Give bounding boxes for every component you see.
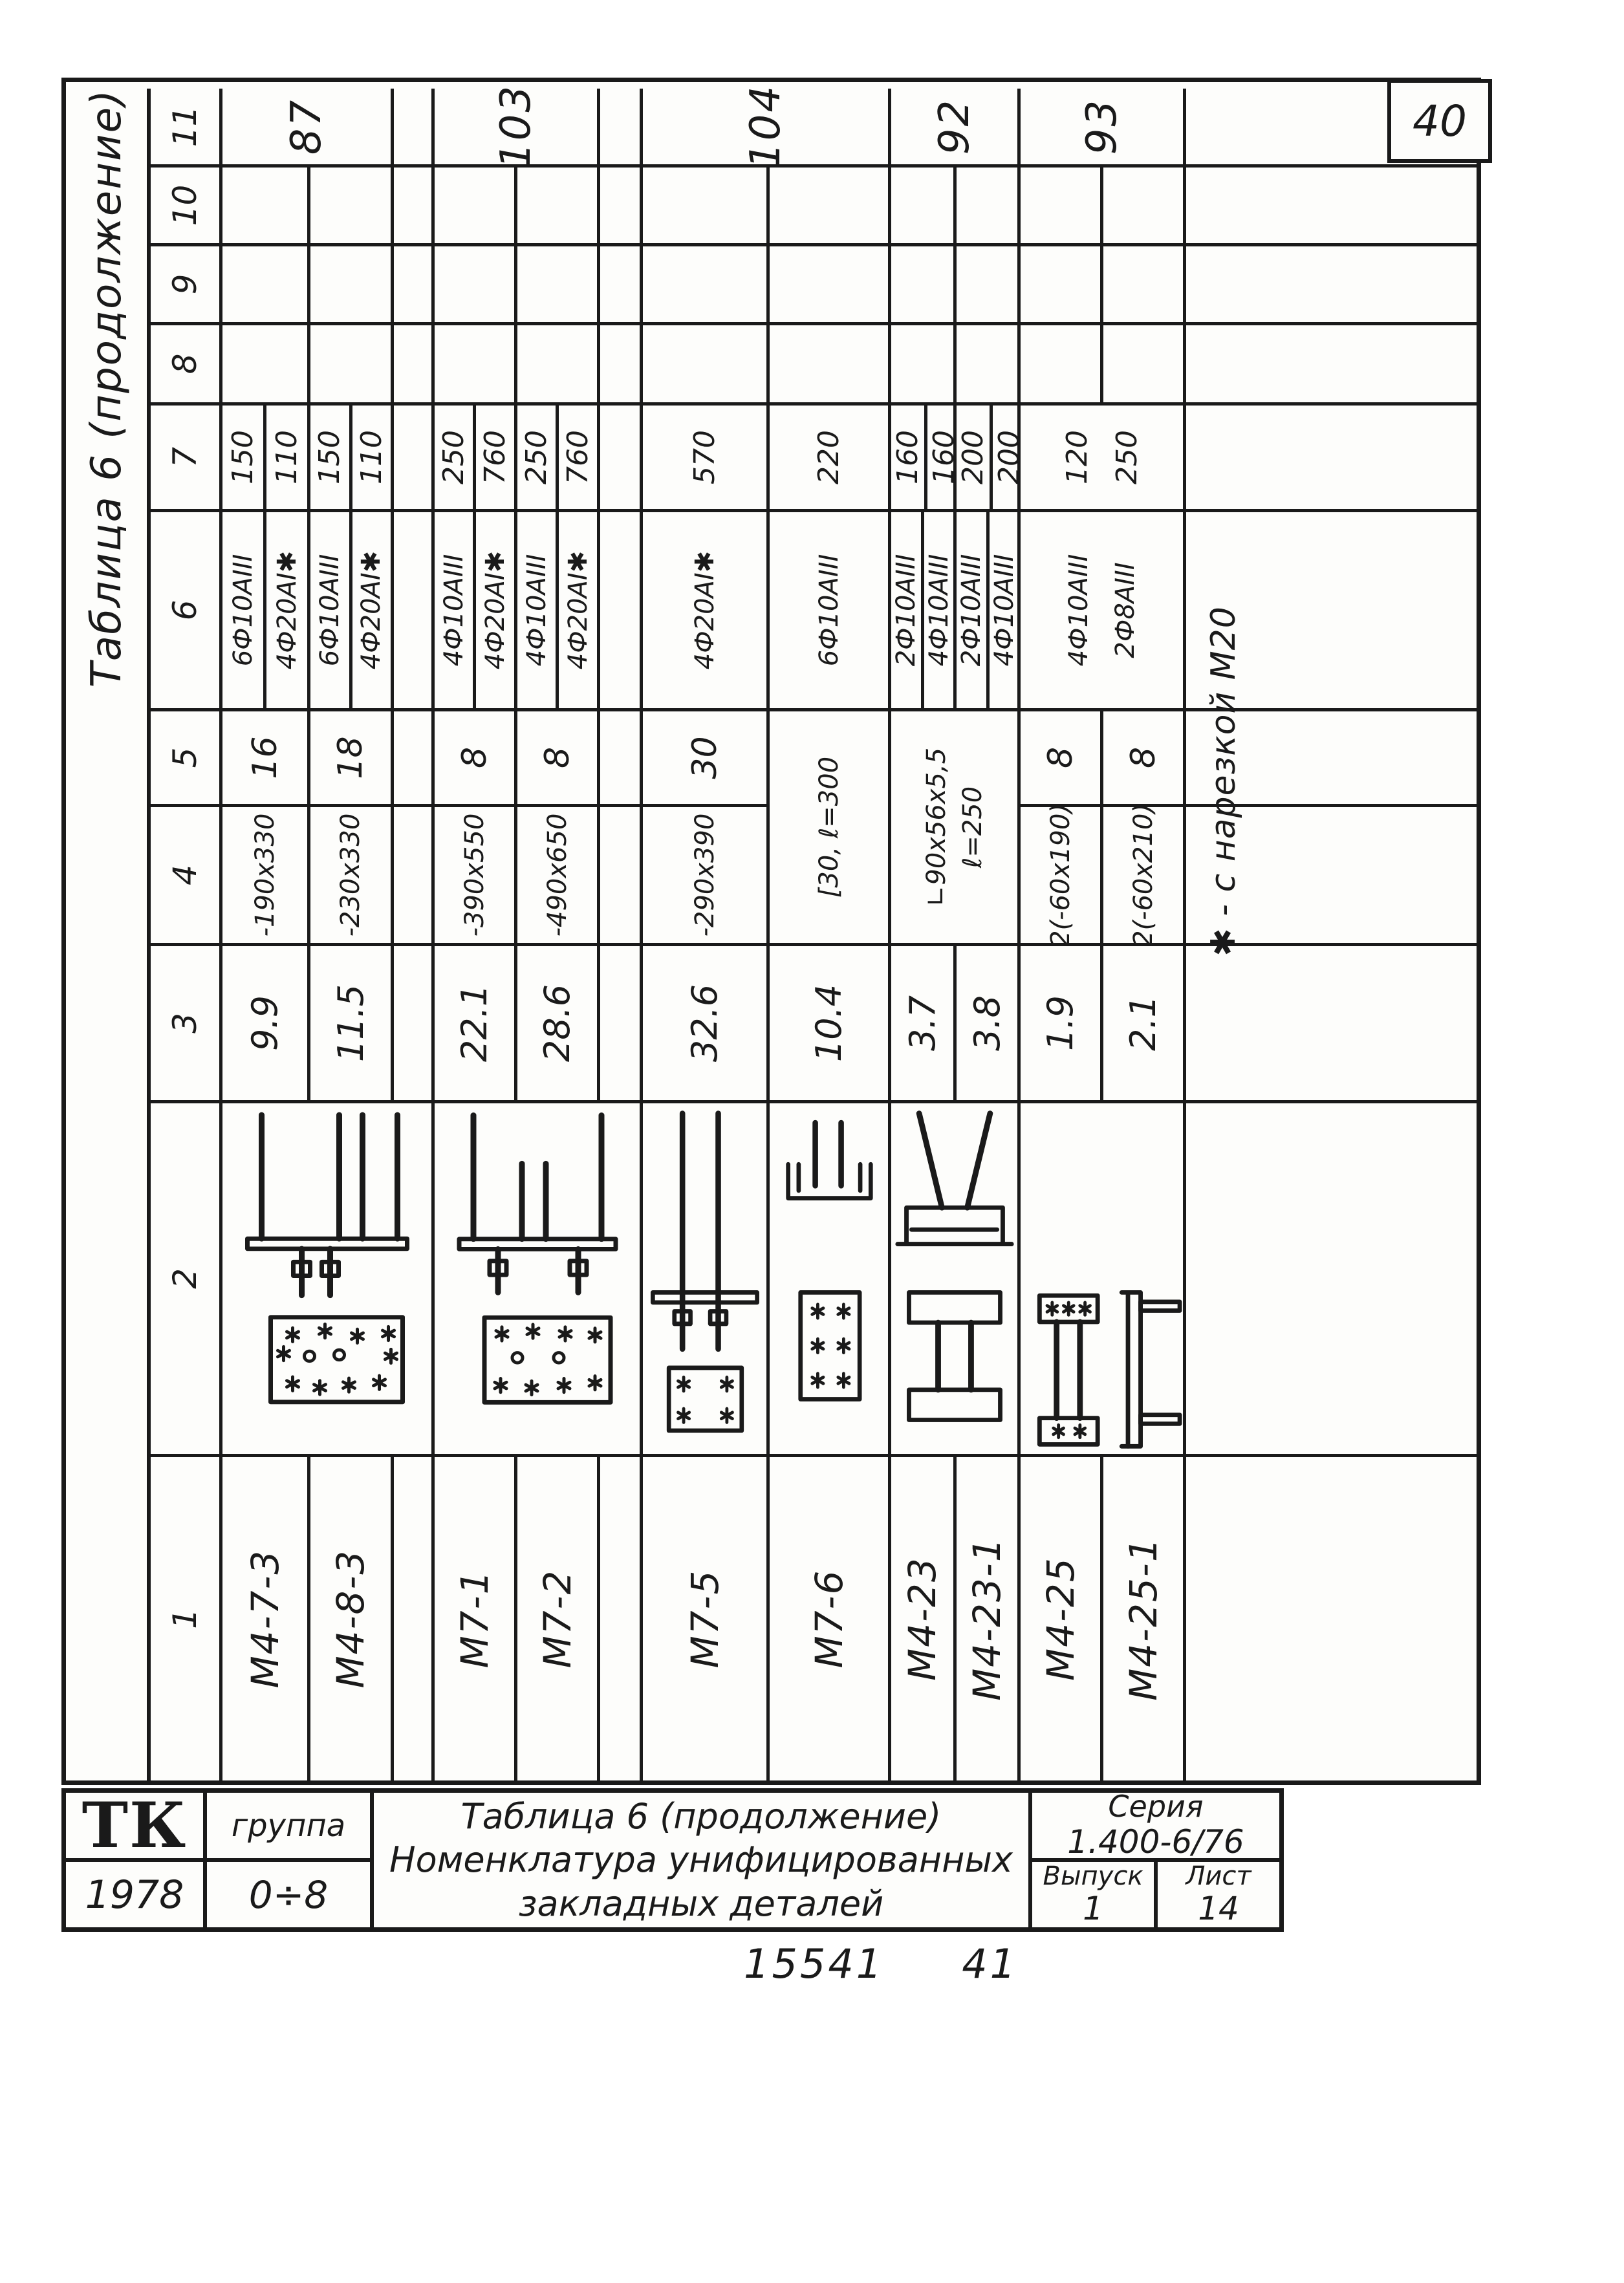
rebar-entry: 4Ф10АIII: [517, 512, 556, 708]
empty-cell: [891, 246, 953, 322]
mark-cell: М4-25-1: [1103, 1457, 1183, 1780]
length-cell: 570: [643, 406, 766, 509]
empty-cell: [1103, 168, 1183, 243]
group-mass-cell: 93: [1021, 89, 1183, 164]
empty-cell: [600, 807, 640, 943]
empty-cell: [222, 325, 307, 402]
empty-cell: [1021, 246, 1100, 322]
empty-cell: [600, 946, 640, 1100]
empty-cell: [1103, 246, 1183, 322]
group-mass-cell: 104: [643, 89, 888, 164]
empty-cell: [1021, 168, 1100, 243]
plate-cell: 2(-60x190): [1021, 807, 1100, 943]
empty-cell: [310, 168, 391, 243]
sheet-label: Лист: [1186, 1863, 1251, 1890]
sketch-cell: [435, 1103, 640, 1454]
scanned-sheet: { "page": { "sheet_number": "40", "stamp…: [0, 0, 1624, 2283]
length-entry: 160: [927, 406, 953, 509]
rebar-entry: 4Ф20АI✱: [352, 512, 391, 708]
rotated-table-layer: Таблица 6 (продолжение) 1 2 3 4 5 6 7 8 …: [61, 78, 1481, 1785]
length-cell: 150 110: [222, 406, 307, 509]
rebar-cell: 6Ф10АIII 4Ф20АI✱: [310, 512, 391, 708]
empty-cell: [643, 168, 766, 243]
length-entry: 150: [310, 406, 349, 509]
empty-cell: [770, 325, 888, 402]
sketch-m4-25-group-drawing: [1022, 1104, 1182, 1453]
group-label-cell: группа: [207, 1793, 370, 1858]
sketch-cell: [770, 1103, 888, 1454]
header-cell: 2: [151, 1103, 219, 1454]
header-cell: 4: [151, 807, 219, 943]
empty-cell: [394, 246, 431, 322]
length-entry: 760: [476, 406, 514, 509]
header-cell: 10: [151, 168, 219, 243]
length-entry: 120: [1061, 430, 1094, 484]
qty-cell: 18: [310, 711, 391, 804]
empty-cell: [600, 512, 640, 708]
sheet-number: 40: [1413, 96, 1467, 146]
length-cell: 250 760: [435, 406, 514, 509]
length-entry: 200: [993, 406, 1017, 509]
length-entry: 760: [559, 406, 597, 509]
empty-cell: [1186, 1457, 1480, 1780]
rebar-entry: 4Ф10АIII: [924, 512, 953, 708]
empty-cell: [891, 168, 953, 243]
stamp-numbers: 1554141: [744, 1940, 1096, 1987]
empty-cell: [310, 325, 391, 402]
sketch-m4-7-group-drawing: [242, 1104, 412, 1453]
empty-cell: [310, 246, 391, 322]
header-cell: 3: [151, 946, 219, 1100]
issue-label: Выпуск: [1043, 1863, 1143, 1890]
length-entry: 160: [891, 406, 924, 509]
sketch-m4-23-group-drawing: [893, 1104, 1017, 1453]
empty-cell: [600, 89, 640, 164]
title-line: Номенклатура унифицированных: [389, 1838, 1013, 1882]
empty-cell: [1186, 246, 1480, 322]
sketch-m7-5-drawing: [644, 1104, 766, 1453]
length-cell: 150 110: [310, 406, 391, 509]
mass-cell: 28.6: [517, 946, 597, 1100]
mark-cell: М7-1: [435, 1457, 514, 1780]
empty-cell: [957, 325, 1017, 402]
empty-cell: [643, 325, 766, 402]
mass-cell: 1.9: [1021, 946, 1100, 1100]
logo-cell: ТК: [66, 1793, 203, 1858]
empty-cell: [600, 325, 640, 402]
sheet-cell: Лист 14: [1158, 1862, 1279, 1927]
stamp-number-right: 41: [962, 1940, 1018, 1987]
table-caption: Таблица 6 (продолжение): [66, 78, 147, 1780]
table-footnote: ✱ - с нарезкой М20: [1204, 519, 1243, 1043]
empty-cell: [1021, 325, 1100, 402]
empty-cell: [435, 325, 514, 402]
rebar-cell: 2Ф10АIII 4Ф10АIII: [891, 512, 953, 708]
qty-cell: 8: [435, 711, 514, 804]
empty-cell: [517, 246, 597, 322]
empty-cell: [957, 246, 1017, 322]
series-cell: Серия 1.400-6/76: [1032, 1793, 1279, 1858]
sketch-cell: [891, 1103, 1017, 1454]
group-mass-cell: 92: [891, 89, 1017, 164]
sketch-m7-1-group-drawing: [455, 1104, 620, 1453]
mass-cell: 22.1: [435, 946, 514, 1100]
empty-cell: [600, 1457, 640, 1780]
rebar-cell: 4Ф10АIII 2Ф8АIII: [1021, 512, 1183, 708]
mark-cell: М7-5: [643, 1457, 766, 1780]
mass-cell: 10.4: [770, 946, 888, 1100]
header-cell: 1: [151, 1457, 219, 1780]
sheet-number-box: 40: [1387, 79, 1492, 163]
length-cell: 160 160: [891, 406, 953, 509]
length-entry: 110: [266, 406, 307, 509]
rebar-entry: 6Ф10АIII: [310, 512, 349, 708]
qty-cell: 16: [222, 711, 307, 804]
plate-cell: -290x390: [643, 807, 766, 943]
mass-cell: 3.7: [891, 946, 953, 1100]
header-cell: 5: [151, 711, 219, 804]
mass-cell: 11.5: [310, 946, 391, 1100]
mass-cell: 9.9: [222, 946, 307, 1100]
rebar-entry: 4Ф20АI✱: [266, 512, 307, 708]
length-cell: 250 760: [517, 406, 597, 509]
plate-cell: -490x650: [517, 807, 597, 943]
mark-cell: М7-6: [770, 1457, 888, 1780]
group-mass-cell: 87: [222, 89, 391, 164]
plate-cell: 2(-60x210): [1103, 807, 1183, 943]
rebar-cell: 4Ф10АIII 4Ф20АI✱: [517, 512, 597, 708]
empty-cell: [394, 406, 431, 509]
mark-cell: М7-2: [517, 1457, 597, 1780]
mass-cell: 32.6: [643, 946, 766, 1100]
sketch-cell: [222, 1103, 431, 1454]
rebar-entry: 4Ф10АIII: [435, 512, 473, 708]
title-line: закладных деталей: [519, 1882, 883, 1926]
empty-cell: [600, 168, 640, 243]
mark-cell: М4-7-3: [222, 1457, 307, 1780]
mark-cell: М4-23-1: [957, 1457, 1017, 1780]
length-entry: 200: [957, 406, 990, 509]
length-cell: 220: [770, 406, 888, 509]
qty-cell: 30: [643, 711, 766, 804]
series-label: Серия: [1108, 1790, 1203, 1823]
empty-cell: [435, 168, 514, 243]
mark-cell: М4-25: [1021, 1457, 1100, 1780]
mark-cell: М4-8-3: [310, 1457, 391, 1780]
mass-cell: 3.8: [957, 946, 1017, 1100]
group-value-cell: 0÷8: [207, 1862, 370, 1927]
angle-spec-cell: ∟90x56x5,5 ℓ=250: [891, 711, 1017, 943]
empty-cell: [394, 1457, 431, 1780]
empty-cell: [394, 807, 431, 943]
group-mass-cell: 103: [435, 89, 597, 164]
length-cell: 120 250: [1021, 406, 1183, 509]
channel-spec-cell: [30, ℓ=300: [770, 711, 888, 943]
empty-cell: [222, 168, 307, 243]
sketch-cell: [1021, 1103, 1183, 1454]
empty-cell: [1186, 325, 1480, 402]
empty-cell: [957, 168, 1017, 243]
angle-spec-line: ℓ=250: [958, 748, 988, 907]
length-entry: 250: [517, 406, 556, 509]
rebar-entry: 2Ф10АIII: [957, 512, 986, 708]
empty-cell: [1186, 168, 1480, 243]
rebar-cell: 2Ф10АIII 4Ф10АIII: [957, 512, 1017, 708]
title-block: ТК группа Таблица 6 (продолжение) Номенк…: [61, 1788, 1284, 1932]
empty-cell: [435, 246, 514, 322]
empty-cell: [1186, 406, 1480, 509]
length-cell: 200 200: [957, 406, 1017, 509]
tk-logo: ТК: [82, 1789, 188, 1862]
empty-cell: [600, 246, 640, 322]
rebar-cell: 6Ф10АIII 4Ф20АI✱: [222, 512, 307, 708]
plate-cell: -230x330: [310, 807, 391, 943]
mass-cell: 2.1: [1103, 946, 1183, 1100]
header-cell: 9: [151, 246, 219, 322]
empty-cell: [770, 168, 888, 243]
rebar-entry: 2Ф8АIII: [1110, 554, 1140, 667]
mark-cell: М4-23: [891, 1457, 953, 1780]
header-cell: 11: [151, 89, 219, 164]
empty-cell: [394, 89, 431, 164]
issue-cell: Выпуск 1: [1032, 1862, 1154, 1927]
empty-cell: [394, 711, 431, 804]
empty-cell: [600, 711, 640, 804]
sketch-cell: [643, 1103, 766, 1454]
header-cell: 7: [151, 406, 219, 509]
rebar-entry: 4Ф20АI✱: [476, 512, 514, 708]
document-title-cell: Таблица 6 (продолжение) Номенклатура уни…: [374, 1793, 1028, 1927]
stamp-number-left: 15541: [744, 1940, 884, 1987]
empty-cell: [770, 246, 888, 322]
rebar-entry: 2Ф10АIII: [891, 512, 921, 708]
series-value: 1.400-6/76: [1067, 1823, 1244, 1861]
header-cell: 8: [151, 325, 219, 402]
empty-cell: [1103, 325, 1183, 402]
length-entry: 250: [435, 406, 473, 509]
length-entry: 150: [222, 406, 263, 509]
rebar-entry: 4Ф10АIII: [1064, 554, 1094, 667]
plate-cell: -190x330: [222, 807, 307, 943]
empty-cell: [394, 512, 431, 708]
qty-cell: 8: [517, 711, 597, 804]
sketch-m7-6-drawing: [771, 1104, 887, 1453]
empty-cell: [394, 168, 431, 243]
empty-cell: [222, 246, 307, 322]
rebar-entry: 4Ф20АI✱: [559, 512, 597, 708]
plate-cell: -390x550: [435, 807, 514, 943]
empty-cell: [1186, 1103, 1480, 1454]
empty-cell: [891, 325, 953, 402]
issue-value: 1: [1083, 1890, 1103, 1927]
rebar-cell: 4Ф10АIII 4Ф20АI✱: [435, 512, 514, 708]
rebar-cell: 6Ф10АIII: [770, 512, 888, 708]
empty-cell: [394, 946, 431, 1100]
rebar-cell: 4Ф20АI✱: [643, 512, 766, 708]
empty-cell: [517, 325, 597, 402]
empty-cell: [394, 325, 431, 402]
empty-cell: [517, 168, 597, 243]
year-cell: 1978: [66, 1862, 203, 1927]
title-line: Таблица 6 (продолжение): [461, 1795, 942, 1839]
rebar-entry: 4Ф10АIII: [990, 512, 1017, 708]
header-cell: 6: [151, 512, 219, 708]
qty-cell: 8: [1103, 711, 1183, 804]
qty-cell: 8: [1021, 711, 1100, 804]
length-entry: 250: [1110, 430, 1143, 484]
empty-cell: [643, 246, 766, 322]
sheet-value: 14: [1198, 1890, 1239, 1927]
angle-spec-line: ∟90x56x5,5: [922, 748, 951, 907]
length-entry: 110: [352, 406, 391, 509]
nomenclature-table: 1 2 3 4 5 6 7 8 9 10 11 М4-7-3 М4-8-3 М7…: [147, 89, 1480, 1780]
empty-cell: [600, 406, 640, 509]
rebar-entry: 6Ф10АIII: [222, 512, 263, 708]
